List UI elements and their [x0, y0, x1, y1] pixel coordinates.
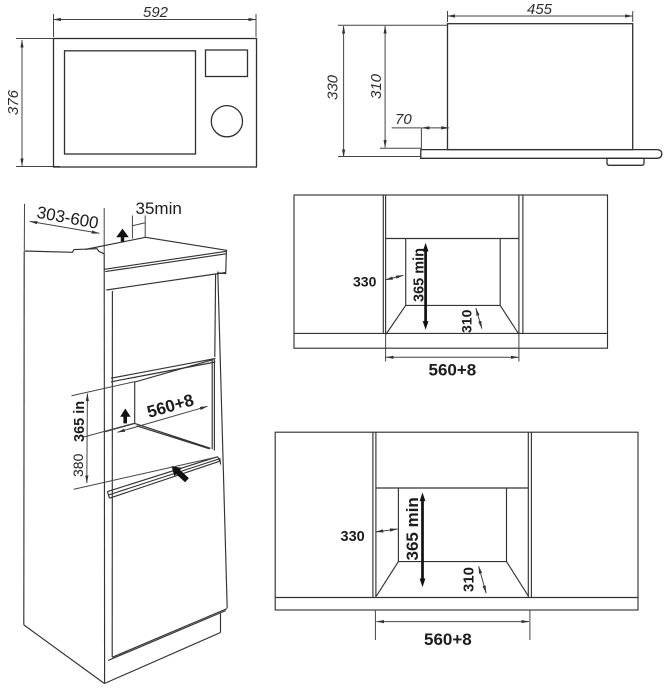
- svg-text:330: 330: [353, 274, 377, 290]
- svg-text:365 min: 365 min: [403, 497, 422, 560]
- svg-text:376: 376: [5, 89, 22, 115]
- svg-text:560+8: 560+8: [424, 630, 472, 649]
- svg-text:330: 330: [325, 74, 342, 100]
- svg-text:35min: 35min: [136, 199, 182, 218]
- svg-text:592: 592: [143, 4, 169, 21]
- svg-text:330: 330: [341, 529, 365, 545]
- svg-text:560+8: 560+8: [429, 361, 477, 380]
- svg-text:310: 310: [459, 309, 475, 333]
- svg-text:70: 70: [395, 111, 412, 128]
- svg-text:365 min: 365 min: [412, 248, 428, 302]
- svg-text:380: 380: [70, 453, 86, 477]
- svg-text:310: 310: [368, 73, 385, 99]
- svg-text:455: 455: [527, 1, 553, 18]
- svg-text:365 in: 365 in: [72, 401, 88, 442]
- svg-text:310: 310: [461, 567, 478, 592]
